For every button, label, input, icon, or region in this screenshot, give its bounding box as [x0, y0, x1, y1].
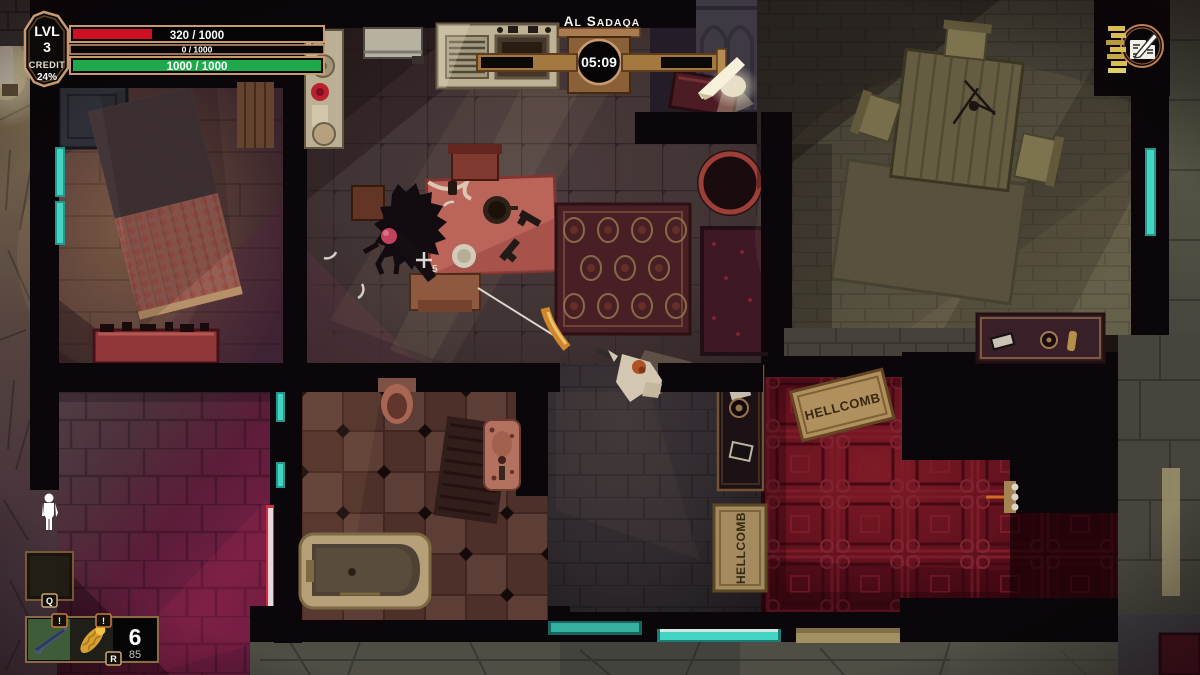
svg-text:1000 / 1000: 1000 / 1000: [167, 61, 228, 73]
svg-text:0 / 1000: 0 / 1000: [182, 45, 213, 55]
svg-text:AL SADAQA: AL SADAQA: [564, 14, 640, 29]
svg-text:05:09: 05:09: [581, 54, 617, 70]
svg-text:!: !: [58, 616, 61, 626]
svg-text:6: 6: [129, 624, 142, 650]
svg-text:85: 85: [129, 649, 141, 661]
svg-text:CREDIT: CREDIT: [29, 60, 66, 70]
svg-text:24%: 24%: [37, 72, 57, 83]
svg-text:320 / 1000: 320 / 1000: [170, 30, 224, 42]
svg-text:3: 3: [43, 39, 51, 55]
svg-text:Q: Q: [46, 596, 53, 606]
svg-text:LVL: LVL: [34, 23, 60, 39]
svg-text:!: !: [102, 616, 105, 626]
svg-text:R: R: [110, 654, 117, 664]
